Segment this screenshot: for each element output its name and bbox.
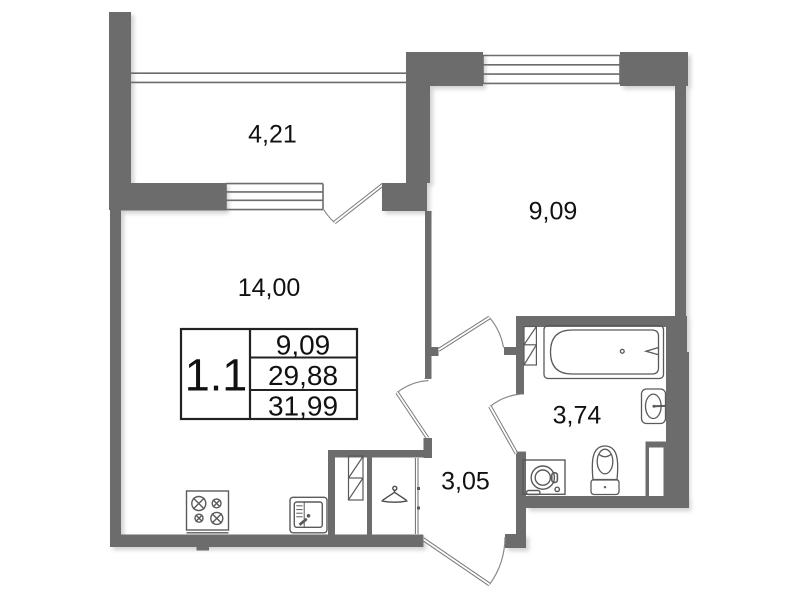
svg-text:9,09: 9,09: [529, 198, 578, 226]
svg-text:9,09: 9,09: [276, 330, 331, 361]
svg-text:31,99: 31,99: [268, 391, 338, 422]
svg-text:29,88: 29,88: [268, 360, 338, 391]
svg-text:4,21: 4,21: [248, 121, 297, 149]
svg-text:14,00: 14,00: [238, 274, 301, 302]
svg-text:1.1: 1.1: [185, 350, 248, 401]
svg-text:3,74: 3,74: [553, 402, 602, 430]
svg-text:3,05: 3,05: [441, 468, 490, 496]
